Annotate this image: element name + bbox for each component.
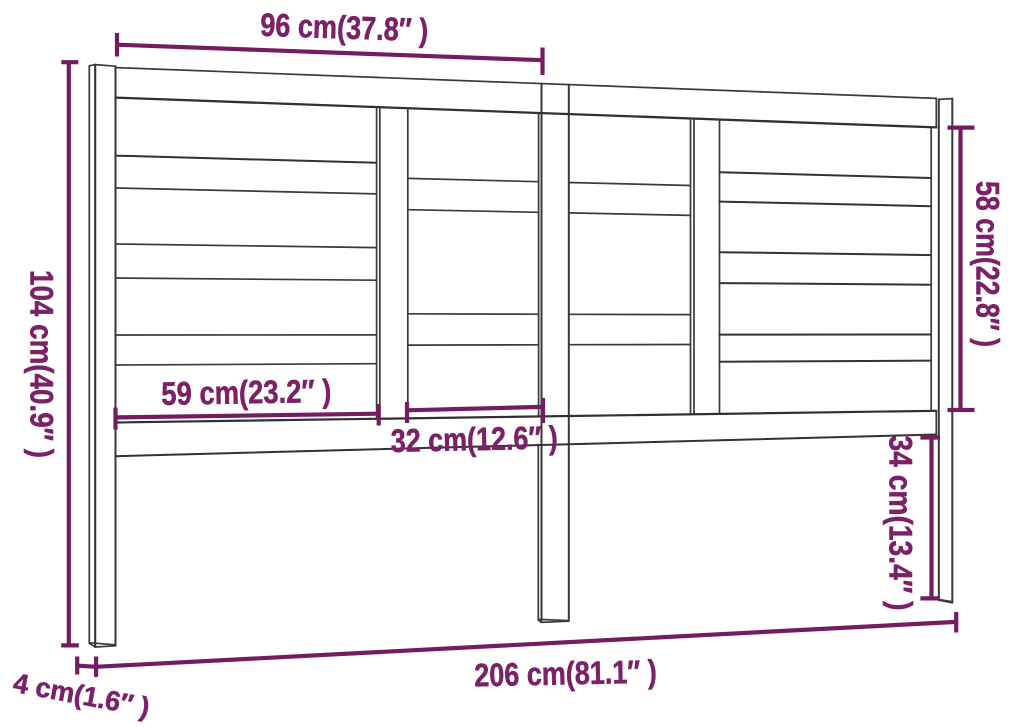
svg-text:34 cm(13.4″ ): 34 cm(13.4″ ) [883, 436, 919, 611]
svg-text:96 cm(37.8″ ): 96 cm(37.8″ ) [260, 7, 429, 49]
svg-text:58 cm(22.8″ ): 58 cm(22.8″ ) [970, 181, 1006, 347]
svg-text:32 cm(12.6″ ): 32 cm(12.6″ ) [390, 420, 558, 459]
svg-text:206 cm(81.1″ ): 206 cm(81.1″ ) [474, 654, 657, 694]
svg-text:59 cm(23.2″ ): 59 cm(23.2″ ) [161, 373, 332, 412]
svg-text:104 cm(40.9″ ): 104 cm(40.9″ ) [24, 270, 60, 458]
